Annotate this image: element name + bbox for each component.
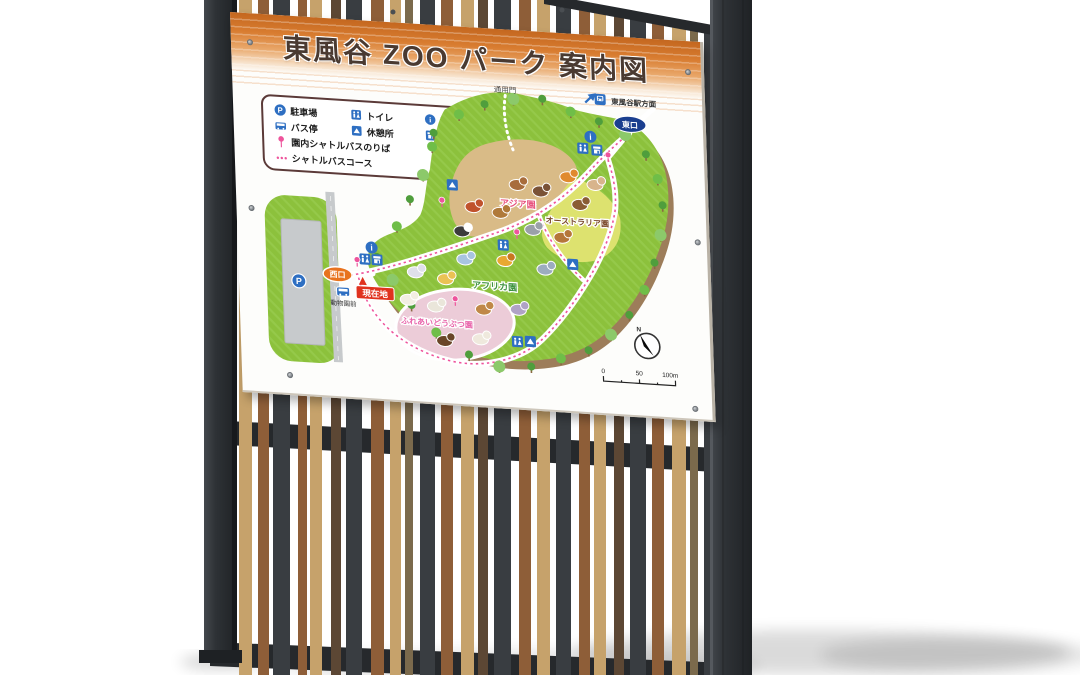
station-icon <box>594 94 605 106</box>
svg-text:P: P <box>296 276 302 286</box>
zoo-sign-render: 東風谷 ZOO パーク 案内図 P駐車場 トイレ i案内所 バス停 休憩所 売店… <box>0 0 1080 675</box>
zoo-map-sign: 東風谷 ZOO パーク 案内図 P駐車場 トイレ i案内所 バス停 休憩所 売店… <box>230 12 716 422</box>
shop-icon <box>371 254 382 266</box>
screw-icon <box>692 406 698 412</box>
fence-post-right <box>710 0 752 675</box>
screw-icon <box>560 8 565 13</box>
park-map: アジア園 オーストラリア園 アフリカ園 ふれあいどうぶつ園 Pii 通用門 東風… <box>232 68 713 414</box>
scale-tick-label: 0 <box>601 368 605 375</box>
toilet-icon <box>577 142 588 154</box>
service-gate-label: 通用門 <box>494 84 517 95</box>
screw-icon <box>391 10 396 15</box>
rest-icon <box>525 336 536 348</box>
screw-icon <box>685 69 691 75</box>
shop-icon <box>591 144 602 156</box>
station-direction-label: 東風谷駅方面 <box>611 96 657 109</box>
scale-bar: 0 50 100m <box>601 368 678 386</box>
scale-tick-label: 100m <box>662 372 678 380</box>
toilet-icon <box>512 336 523 348</box>
west-gate-label: 西口 <box>329 270 345 280</box>
rest-icon <box>447 179 458 191</box>
toilet-icon <box>498 239 509 251</box>
screw-icon <box>248 205 254 211</box>
svg-text:i: i <box>370 242 373 252</box>
screw-icon <box>287 372 293 378</box>
scale-tick-label: 50 <box>636 370 644 377</box>
compass: N <box>634 326 660 359</box>
bus-icon <box>336 287 349 297</box>
tree-icon <box>406 195 414 206</box>
shuttle-bus-stop-icon <box>354 256 360 266</box>
rest-icon <box>567 259 578 271</box>
current-location-label: 現在地 <box>362 288 388 300</box>
toilet-icon <box>359 253 370 265</box>
bus-stop-name-label: 動物園前 <box>330 298 357 309</box>
svg-text:i: i <box>589 132 592 142</box>
compass-north-label: N <box>636 326 641 333</box>
screw-icon <box>247 39 253 45</box>
screw-icon <box>695 239 701 245</box>
east-gate-label: 東口 <box>622 119 638 130</box>
